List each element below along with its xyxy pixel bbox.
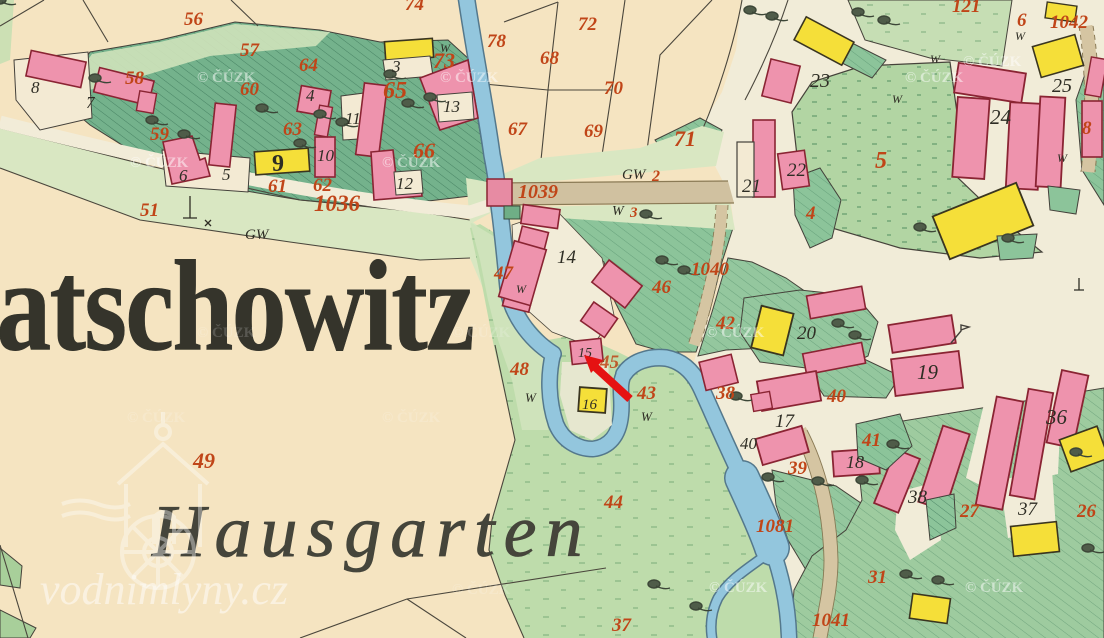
svg-text:37: 37 (1017, 499, 1039, 520)
svg-text:47: 47 (493, 263, 515, 284)
svg-text:72: 72 (578, 14, 598, 35)
svg-text:vodnimlyny.cz: vodnimlyny.cz (40, 565, 288, 614)
svg-text:© ČÚZK: © ČÚZK (452, 324, 511, 341)
svg-text:49: 49 (192, 448, 215, 473)
svg-text:© ČÚZK: © ČÚZK (382, 154, 441, 171)
svg-text:11: 11 (345, 109, 361, 128)
svg-text:40: 40 (826, 386, 847, 407)
svg-text:19: 19 (917, 360, 939, 384)
svg-text:© ČÚZK: © ČÚZK (706, 324, 765, 341)
svg-text:58: 58 (125, 68, 145, 89)
svg-text:W: W (440, 41, 451, 55)
svg-text:46: 46 (651, 277, 672, 298)
svg-text:17: 17 (775, 411, 796, 432)
svg-text:61: 61 (268, 176, 287, 197)
svg-text:24: 24 (990, 105, 1012, 129)
svg-text:4: 4 (805, 203, 816, 224)
svg-text:57: 57 (240, 40, 261, 61)
svg-text:26: 26 (1076, 501, 1097, 522)
svg-text:40: 40 (740, 434, 758, 453)
svg-text:W: W (612, 204, 625, 219)
svg-text:9: 9 (272, 151, 284, 177)
svg-text:38: 38 (715, 383, 736, 404)
svg-text:© ČÚZK: © ČÚZK (963, 53, 1022, 70)
svg-text:© ČÚZK: © ČÚZK (440, 69, 499, 86)
svg-text:23: 23 (810, 70, 830, 92)
svg-text:© ČÚZK: © ČÚZK (965, 579, 1024, 596)
svg-text:56: 56 (184, 9, 204, 30)
svg-text:W: W (641, 409, 653, 424)
svg-text:38: 38 (907, 487, 928, 508)
svg-text:4: 4 (306, 86, 315, 105)
svg-text:20: 20 (797, 323, 817, 344)
svg-text:W: W (892, 92, 903, 106)
svg-text:31: 31 (867, 567, 887, 588)
svg-text:59: 59 (150, 124, 170, 145)
svg-text:W: W (525, 390, 537, 405)
svg-text:1081: 1081 (756, 516, 794, 537)
svg-text:74: 74 (405, 0, 424, 15)
svg-text:13: 13 (443, 97, 460, 116)
svg-text:© ČÚZK: © ČÚZK (130, 154, 189, 171)
svg-text:2: 2 (651, 168, 660, 185)
svg-text:8: 8 (1082, 118, 1092, 139)
svg-text:65: 65 (383, 78, 407, 104)
svg-text:3: 3 (629, 205, 638, 221)
svg-text:41: 41 (861, 430, 881, 451)
svg-text:44: 44 (603, 492, 623, 513)
svg-text:1041: 1041 (812, 610, 850, 631)
svg-text:1042: 1042 (1050, 12, 1089, 33)
svg-text:8: 8 (31, 78, 40, 97)
svg-text:18: 18 (846, 452, 864, 472)
svg-text:51: 51 (140, 200, 159, 221)
svg-text:70: 70 (604, 78, 624, 99)
svg-text:71: 71 (674, 126, 696, 151)
svg-text:© ČÚZK: © ČÚZK (127, 409, 186, 426)
svg-text:64: 64 (299, 55, 318, 76)
svg-text:121: 121 (952, 0, 981, 17)
svg-text:© ČÚZK: © ČÚZK (197, 324, 256, 341)
svg-text:© ČÚZK: © ČÚZK (452, 581, 511, 598)
svg-text:43: 43 (636, 383, 656, 404)
svg-text:67: 67 (508, 119, 529, 140)
svg-text:36: 36 (1045, 405, 1068, 429)
svg-text:63: 63 (283, 119, 302, 140)
svg-text:GW: GW (245, 227, 270, 243)
svg-text:1040: 1040 (691, 259, 730, 280)
svg-text:atschowitz: atschowitz (0, 235, 473, 378)
svg-text:5: 5 (222, 165, 231, 184)
svg-text:W: W (516, 282, 527, 296)
svg-text:© ČÚZK: © ČÚZK (709, 579, 768, 596)
svg-text:14: 14 (557, 247, 577, 268)
svg-text:27: 27 (959, 501, 981, 522)
svg-text:21: 21 (742, 176, 761, 197)
svg-text:48: 48 (509, 359, 530, 380)
svg-text:6: 6 (1017, 10, 1027, 31)
svg-text:10: 10 (317, 146, 335, 165)
svg-text:© ČÚZK: © ČÚZK (382, 409, 441, 426)
svg-text:1036: 1036 (314, 191, 361, 216)
svg-text:69: 69 (584, 121, 604, 142)
svg-text:12: 12 (396, 174, 414, 193)
svg-text:68: 68 (540, 48, 560, 69)
svg-text:W: W (1015, 29, 1026, 43)
svg-text:W: W (1057, 151, 1068, 165)
svg-text:25: 25 (1052, 75, 1072, 97)
svg-text:22: 22 (787, 160, 807, 181)
svg-text:16: 16 (582, 397, 598, 413)
svg-text:78: 78 (487, 31, 507, 52)
svg-text:© ČÚZK: © ČÚZK (905, 69, 964, 86)
svg-text:3: 3 (391, 57, 401, 76)
svg-text:W: W (930, 52, 941, 66)
svg-text:1039: 1039 (518, 181, 558, 203)
svg-text:39: 39 (787, 458, 808, 479)
svg-text:5: 5 (875, 148, 887, 174)
svg-text:37: 37 (611, 615, 633, 636)
svg-text:© ČÚZK: © ČÚZK (197, 69, 256, 86)
svg-text:GW: GW (622, 167, 647, 183)
svg-text:Hausgarten: Hausgarten (151, 491, 591, 573)
